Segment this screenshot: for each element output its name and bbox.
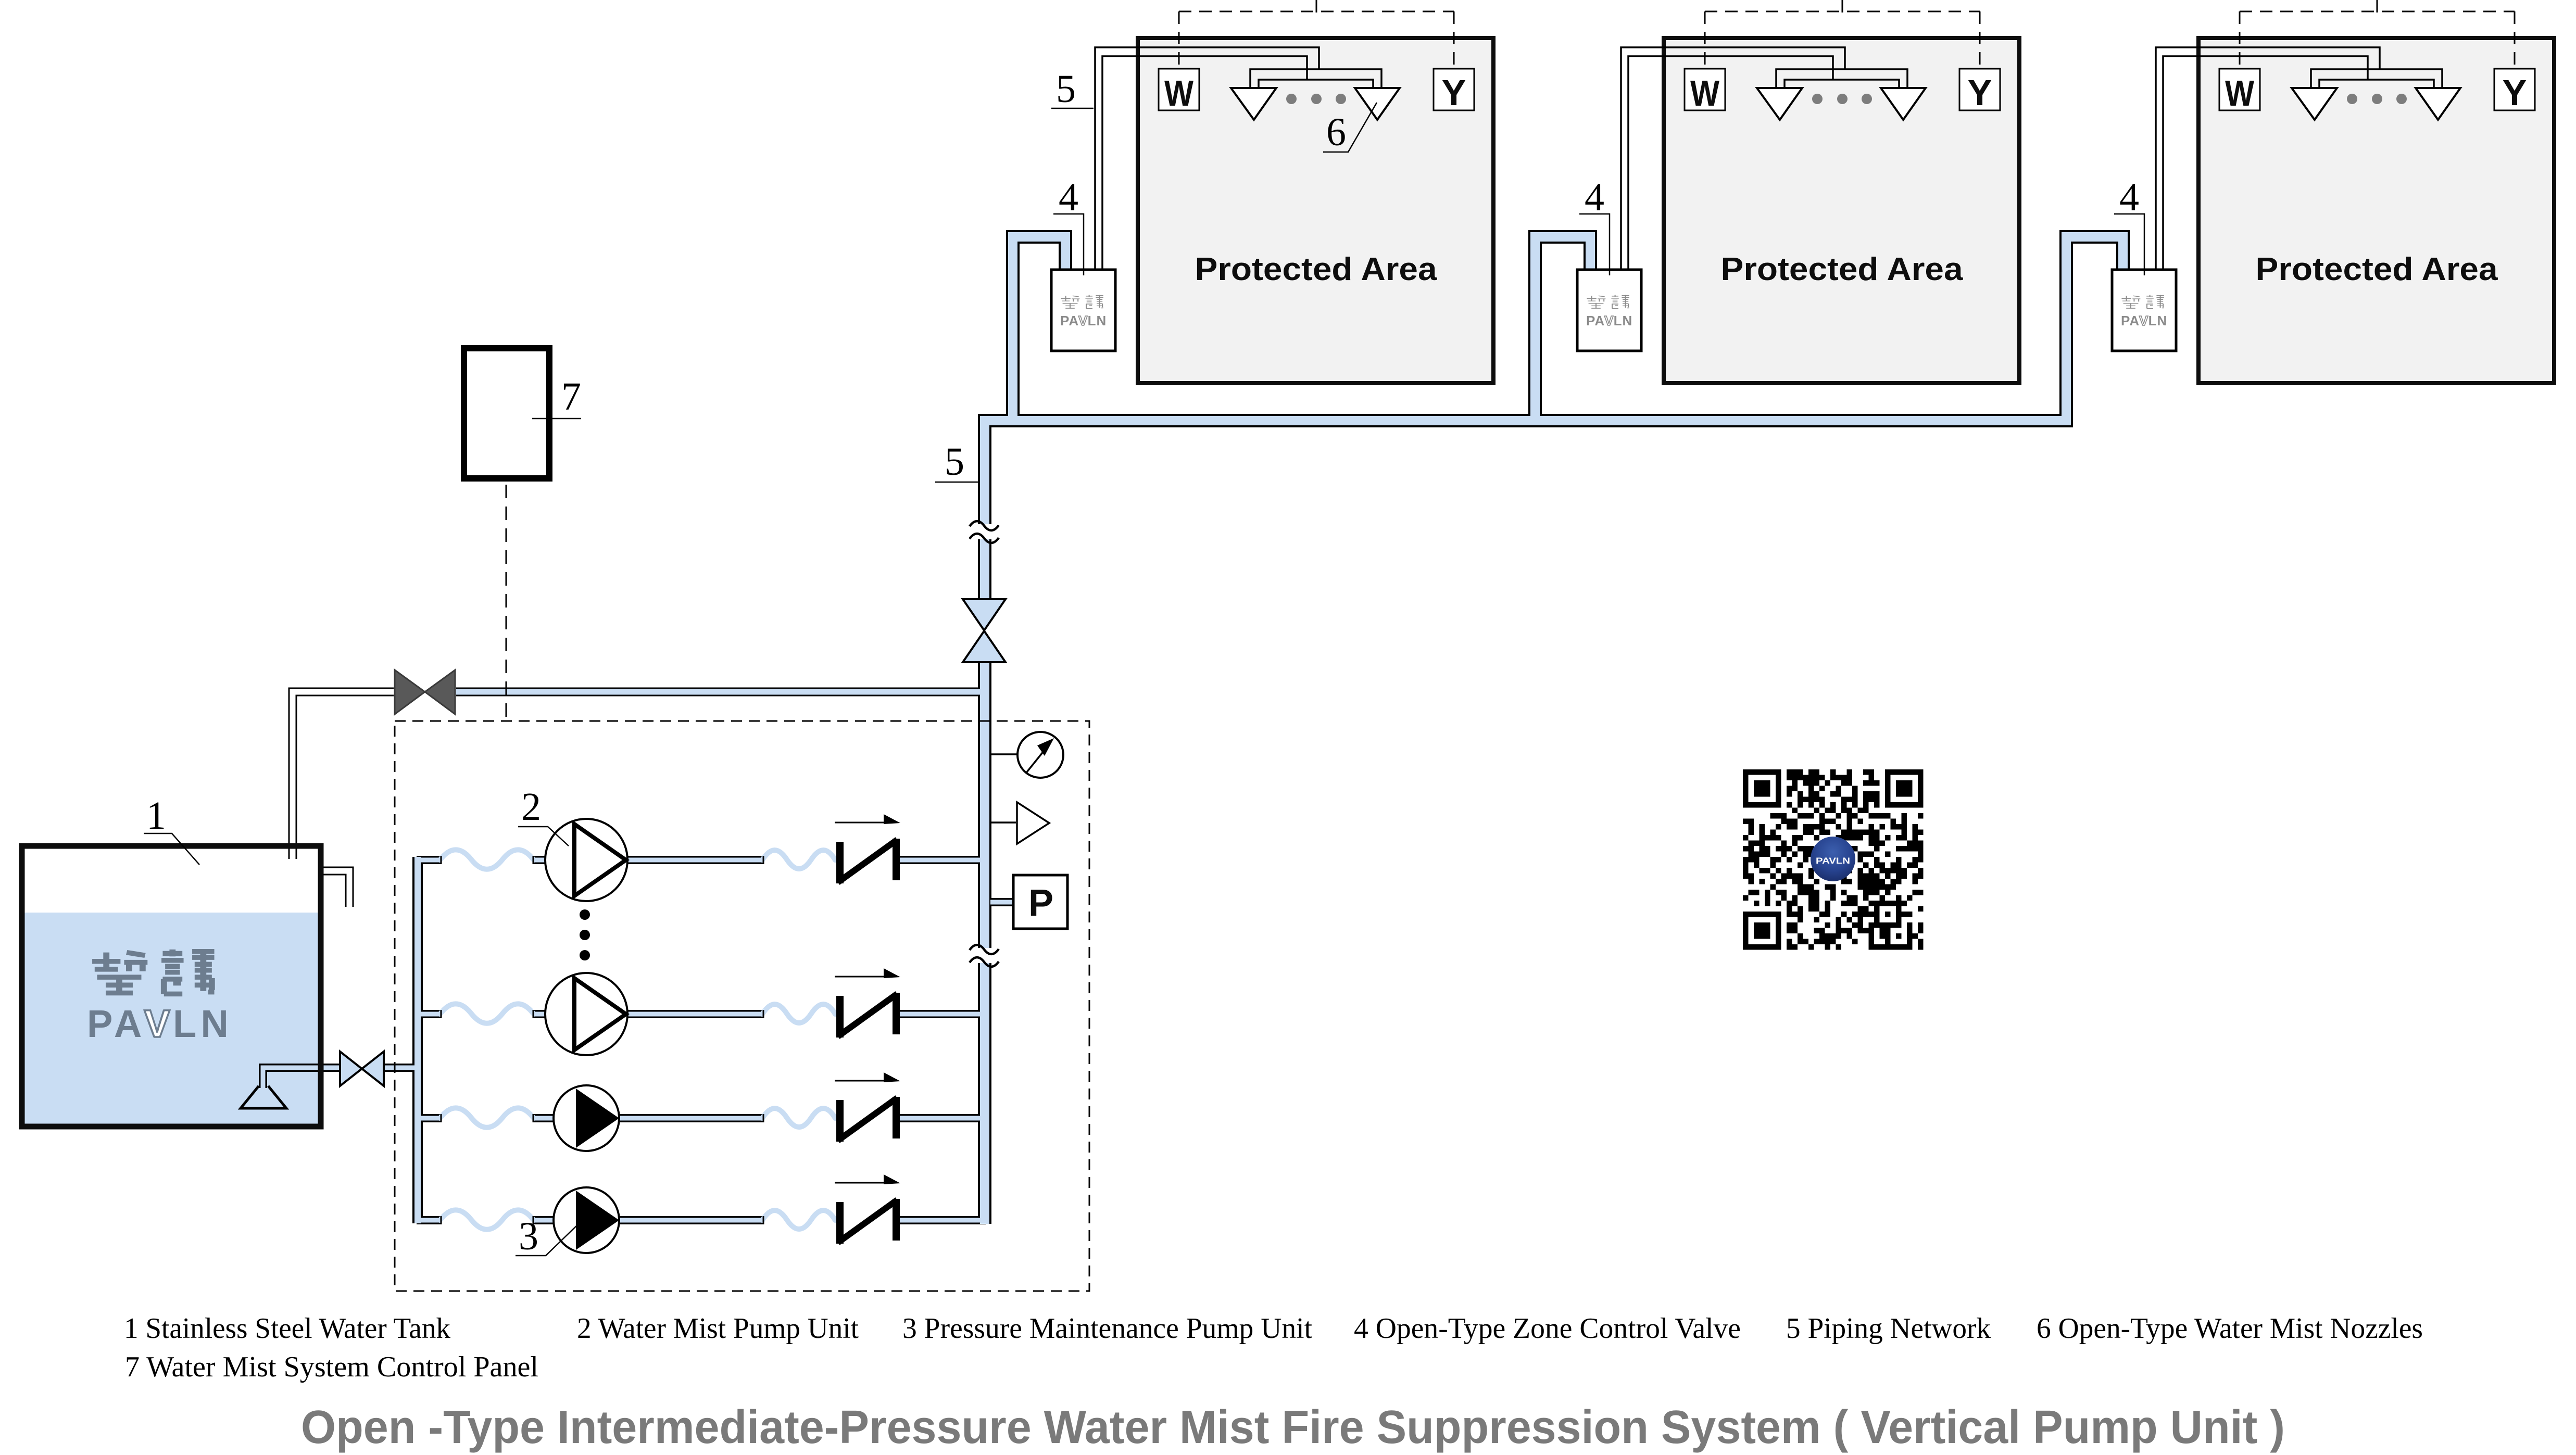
svg-text:2: 2 xyxy=(521,785,541,829)
svg-text:1: 1 xyxy=(146,794,166,838)
svg-text:4 Open-Type Zone Control Valve: 4 Open-Type Zone Control Valve xyxy=(1354,1312,1741,1345)
svg-text:7: 7 xyxy=(561,375,581,419)
svg-text:Protected Area: Protected Area xyxy=(1195,251,1438,287)
svg-text:V: V xyxy=(144,1002,170,1045)
svg-text:3: 3 xyxy=(519,1214,538,1258)
svg-text:4: 4 xyxy=(2119,175,2139,219)
svg-text:7 Water Mist System Control Pa: 7 Water Mist System Control Panel xyxy=(125,1351,538,1383)
svg-text:2 Water Mist Pump Unit: 2 Water Mist Pump Unit xyxy=(577,1312,859,1345)
svg-text:5: 5 xyxy=(1056,67,1076,111)
svg-text:V: V xyxy=(1078,313,1088,328)
svg-text:6: 6 xyxy=(1326,110,1346,154)
svg-text:1 Stainless Steel Water Tank: 1 Stainless Steel Water Tank xyxy=(124,1312,450,1345)
svg-text:Protected Area: Protected Area xyxy=(1721,251,1964,287)
svg-text:5 Piping Network: 5 Piping Network xyxy=(1786,1312,1991,1345)
svg-text:W: W xyxy=(1164,73,1193,113)
svg-text:V: V xyxy=(2139,313,2148,328)
svg-text:5: 5 xyxy=(945,440,964,484)
svg-text:Y: Y xyxy=(1442,72,1466,113)
svg-text:Open -Type Intermediate-Pressu: Open -Type Intermediate-Pressure Water M… xyxy=(301,1401,2285,1453)
svg-text:Protected Area: Protected Area xyxy=(2256,251,2498,287)
svg-text:Y: Y xyxy=(1968,72,1992,113)
svg-text:PAVLN: PAVLN xyxy=(1816,856,1850,866)
svg-text:3 Pressure Maintenance Pump Un: 3 Pressure Maintenance Pump Unit xyxy=(902,1312,1312,1345)
svg-text:P: P xyxy=(1028,882,1053,924)
svg-text:V: V xyxy=(1604,313,1614,328)
svg-text:W: W xyxy=(2225,73,2254,113)
svg-text:Y: Y xyxy=(2503,72,2527,113)
svg-text:4: 4 xyxy=(1059,175,1078,219)
svg-text:6 Open-Type Water Mist Nozzles: 6 Open-Type Water Mist Nozzles xyxy=(2037,1312,2423,1345)
svg-text:W: W xyxy=(1690,73,1719,113)
svg-text:4: 4 xyxy=(1585,175,1604,219)
